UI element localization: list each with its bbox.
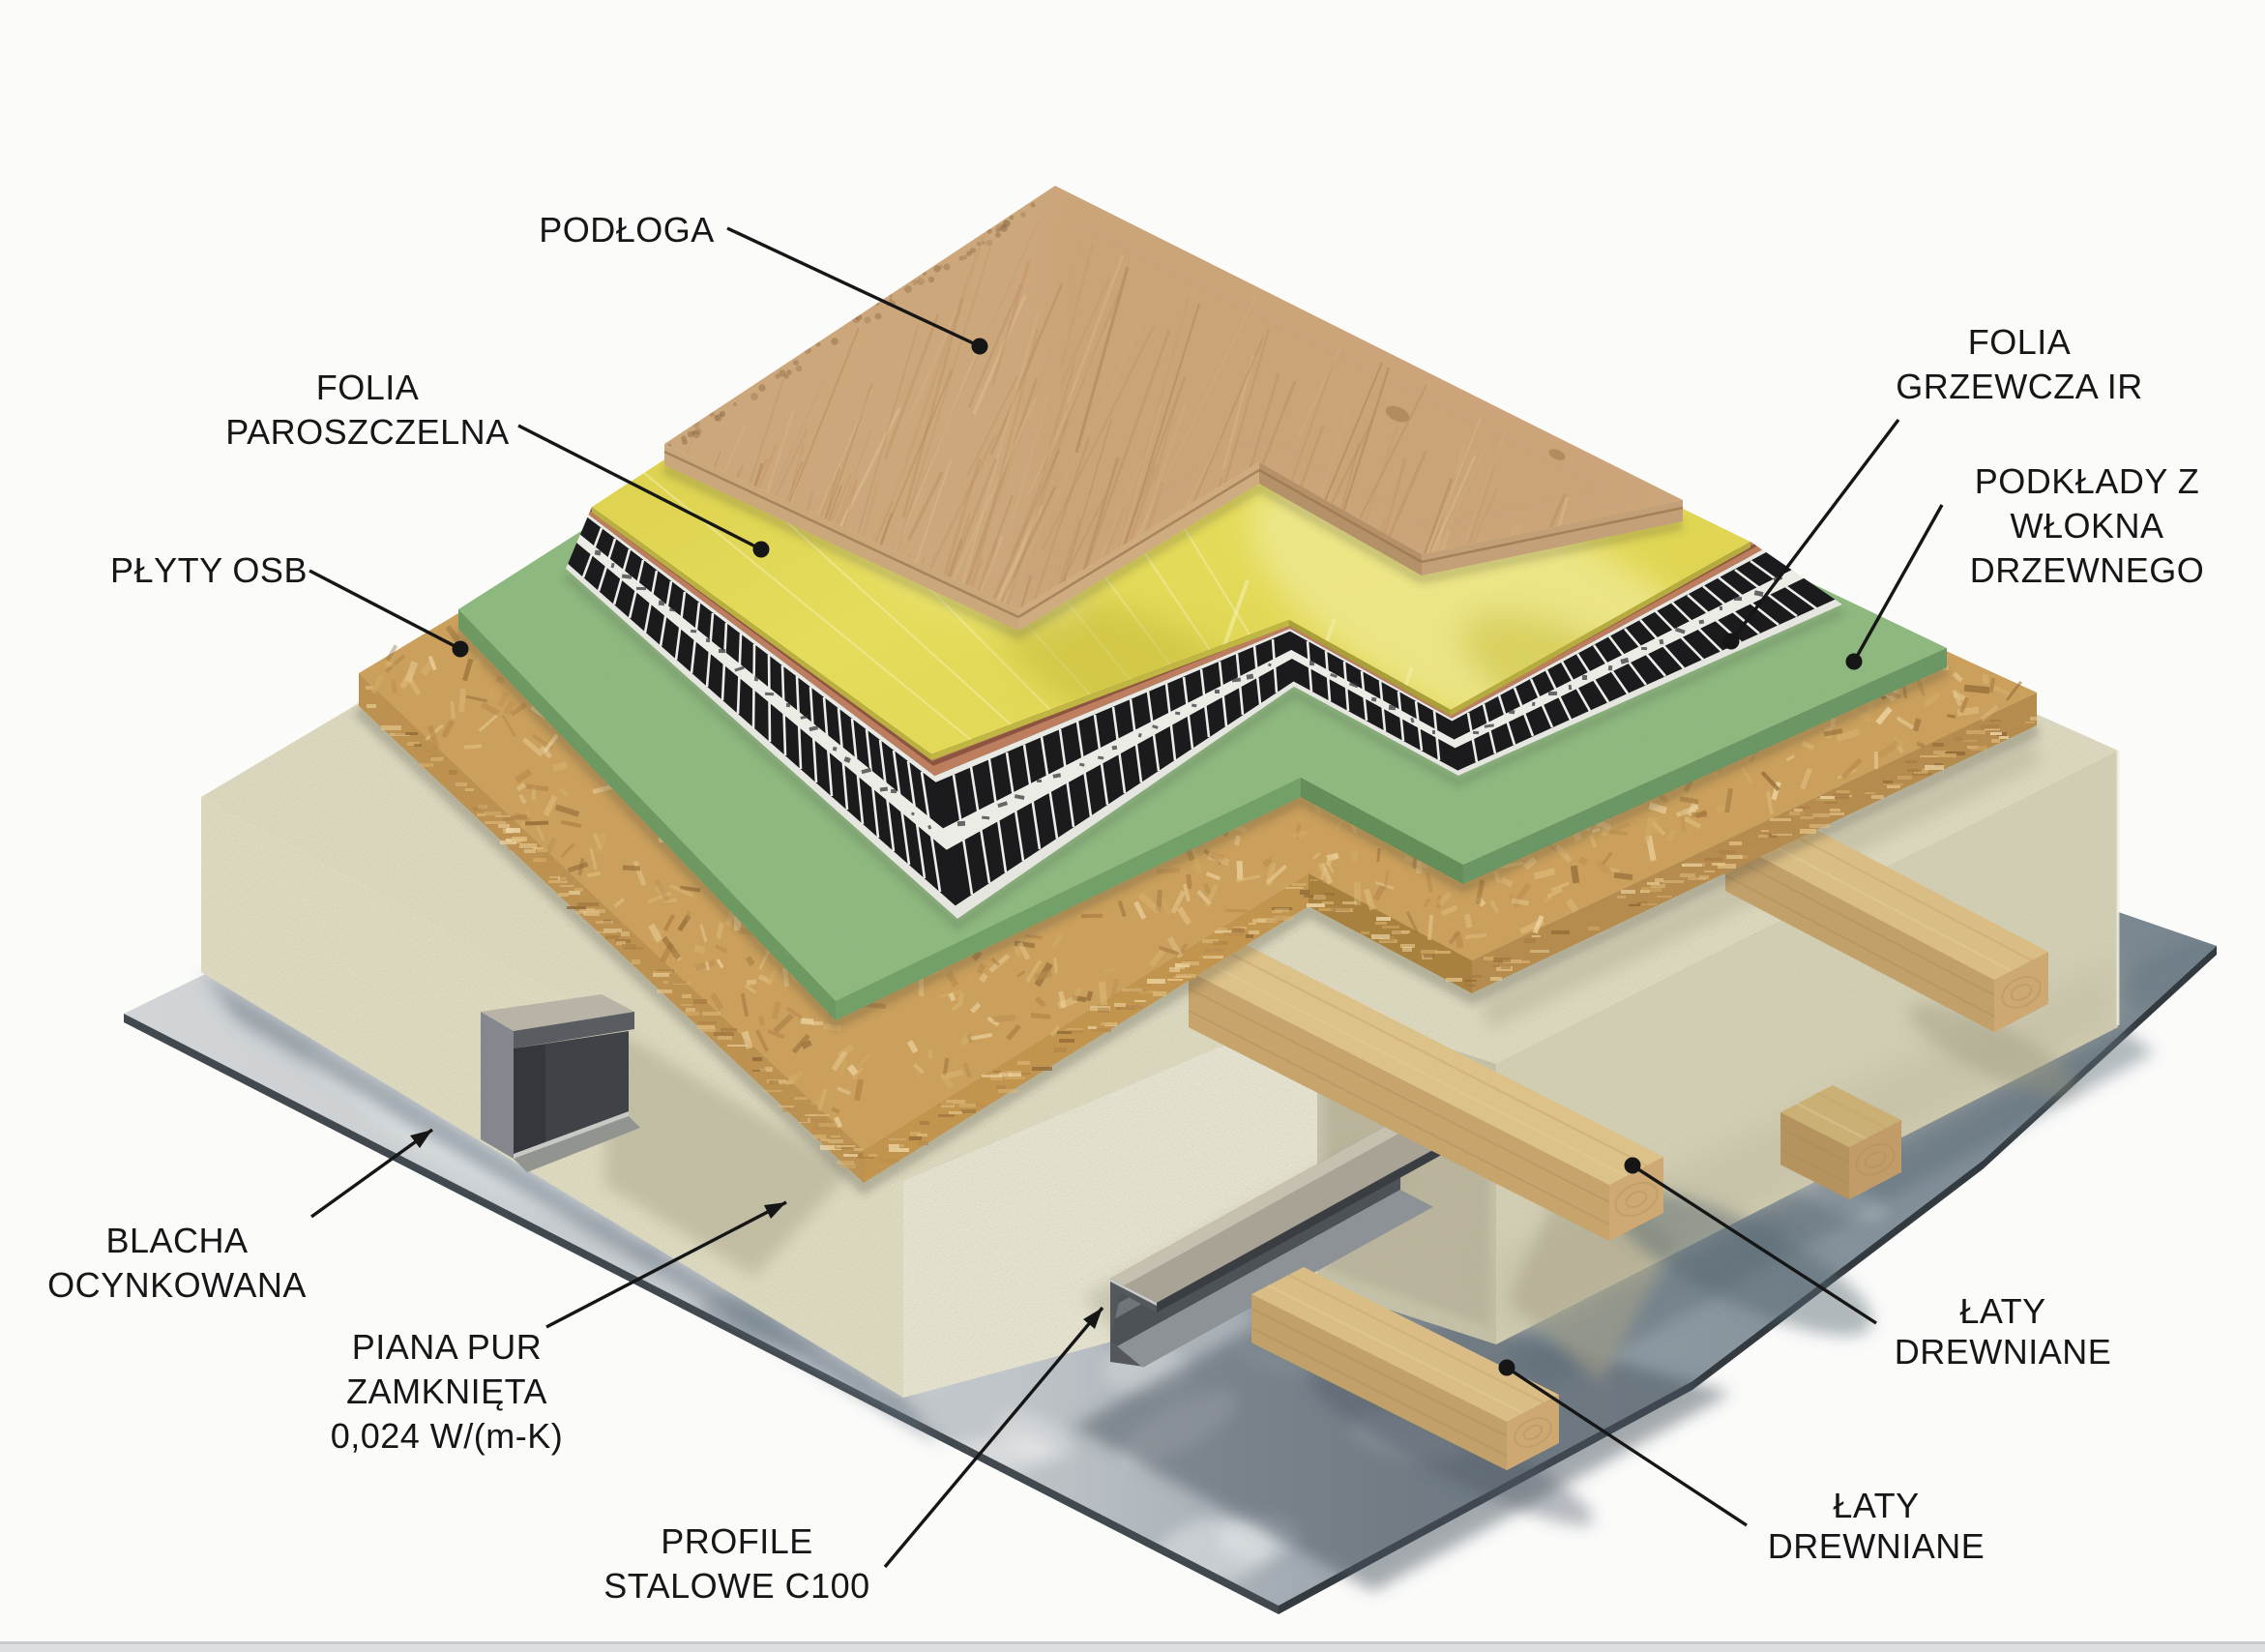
svg-text:ŁATY: ŁATY xyxy=(1833,1486,1919,1525)
svg-text:OCYNKOWANA: OCYNKOWANA xyxy=(47,1265,307,1305)
svg-text:DREWNIANE: DREWNIANE xyxy=(1895,1332,2112,1372)
svg-text:PIANA PUR: PIANA PUR xyxy=(352,1327,543,1367)
svg-text:FOLIA: FOLIA xyxy=(1968,322,2072,362)
svg-text:ZAMKNIĘTA: ZAMKNIĘTA xyxy=(346,1372,547,1411)
svg-text:FOLIA: FOLIA xyxy=(316,368,420,407)
svg-text:PROFILE: PROFILE xyxy=(661,1521,813,1561)
svg-text:PŁYTY OSB: PŁYTY OSB xyxy=(110,550,308,590)
svg-text:DRZEWNEGO: DRZEWNEGO xyxy=(1970,550,2205,590)
svg-text:GRZEWCZA IR: GRZEWCZA IR xyxy=(1896,367,2143,406)
svg-text:BLACHA: BLACHA xyxy=(105,1221,248,1260)
svg-text:PAROSZCZELNA: PAROSZCZELNA xyxy=(225,412,509,452)
svg-text:WŁOKNA: WŁOKNA xyxy=(2010,506,2163,546)
svg-text:PODŁOGA: PODŁOGA xyxy=(539,210,715,250)
svg-text:PODKŁADY Z: PODKŁADY Z xyxy=(1975,461,2199,501)
svg-text:DREWNIANE: DREWNIANE xyxy=(1768,1526,1986,1566)
svg-text:0,024 W/(m-K): 0,024 W/(m-K) xyxy=(331,1416,564,1456)
svg-text:ŁATY: ŁATY xyxy=(1959,1291,2045,1331)
svg-text:STALOWE C100: STALOWE C100 xyxy=(603,1566,869,1606)
